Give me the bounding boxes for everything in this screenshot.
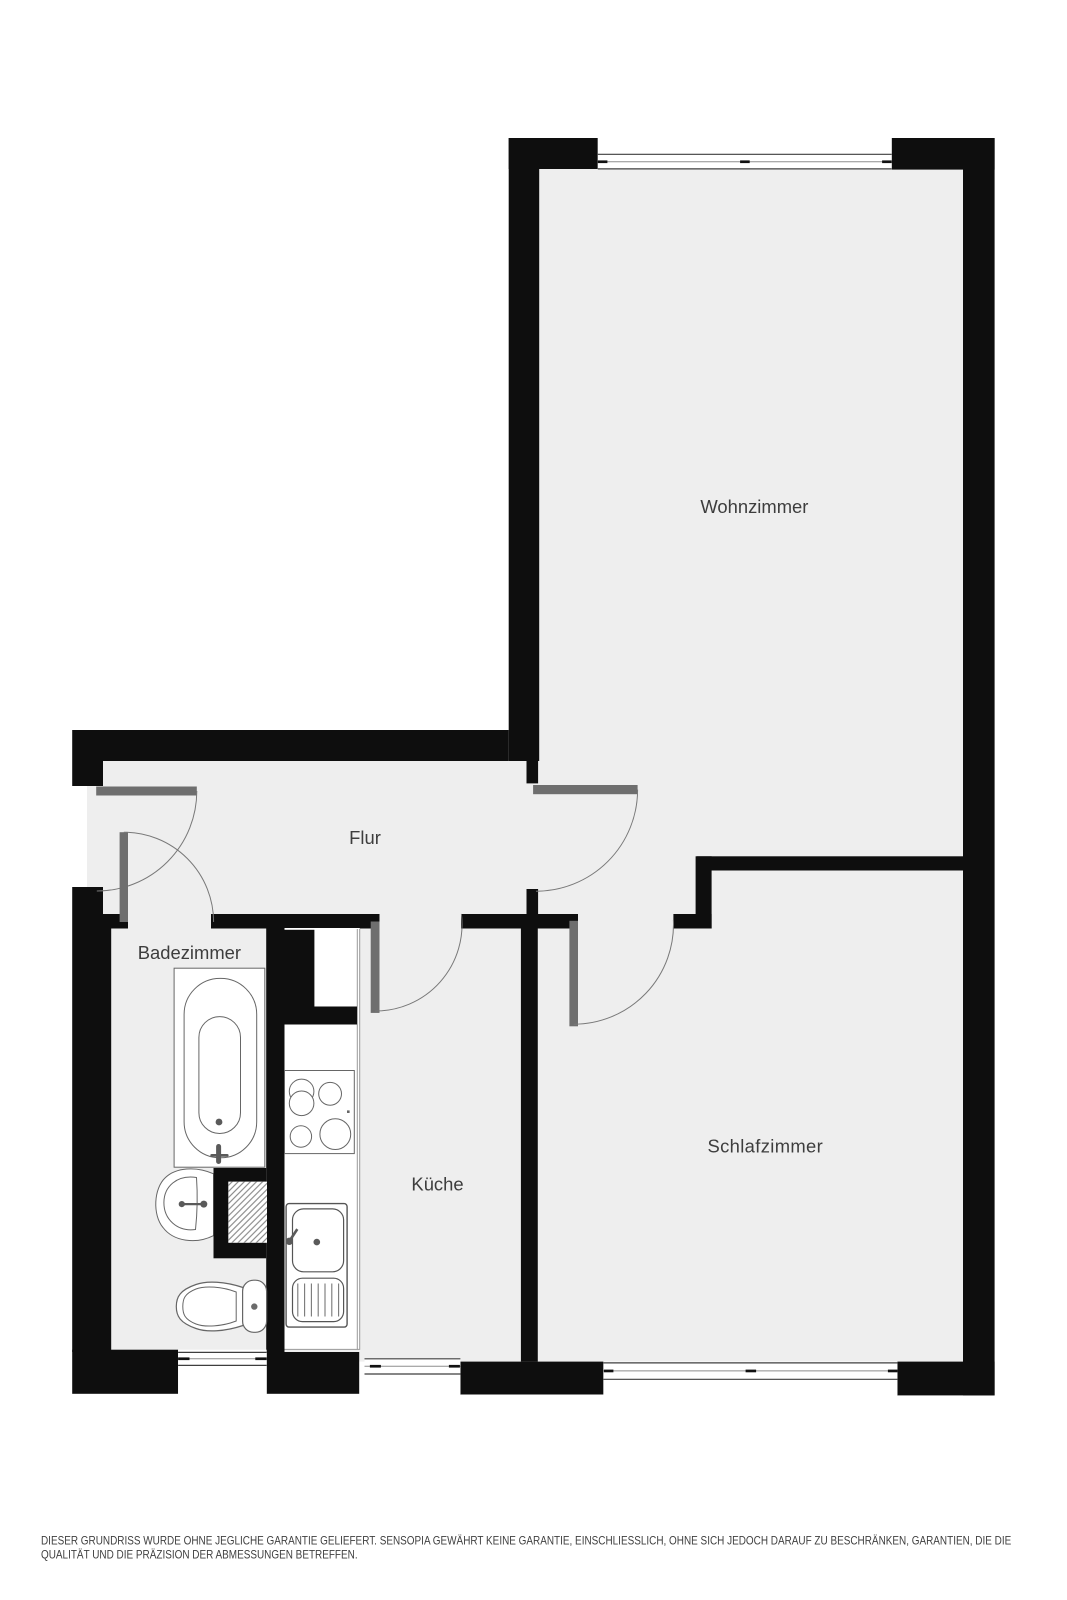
svg-text:DIESER GRUNDRISS WURDE OHNE JE: DIESER GRUNDRISS WURDE OHNE JEGLICHE GAR… xyxy=(41,1535,1011,1548)
svg-text:Badezimmer: Badezimmer xyxy=(138,942,241,963)
svg-text:Wohnzimmer: Wohnzimmer xyxy=(700,496,808,517)
svg-text:Küche: Küche xyxy=(411,1174,463,1195)
svg-text:Schlafzimmer: Schlafzimmer xyxy=(708,1135,824,1156)
svg-text:QUALITÄT UND DIE PRÄZISION DER: QUALITÄT UND DIE PRÄZISION DER ABMESSUNG… xyxy=(41,1549,358,1562)
svg-text:Flur: Flur xyxy=(349,827,381,848)
